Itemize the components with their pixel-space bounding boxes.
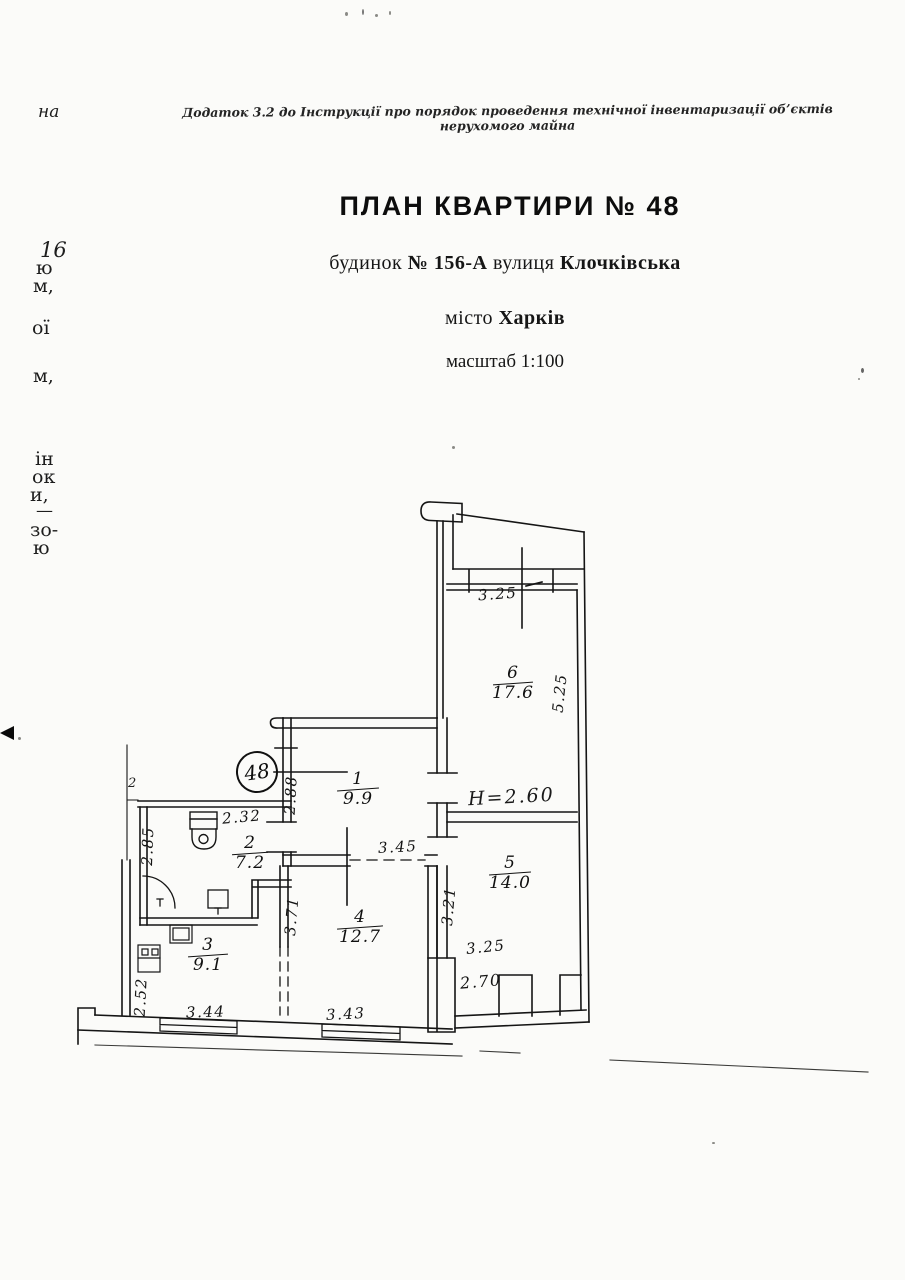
city-line: місто Харків: [145, 307, 865, 330]
margin-fragment: —: [36, 501, 53, 521]
room-number: 5: [504, 856, 516, 871]
scan-speck: [345, 12, 348, 16]
room1-top-wall: [270, 718, 437, 728]
room-number: 1: [352, 772, 364, 787]
address-line: будинок № 156-А вулиця Клочківська: [145, 252, 865, 275]
neighbour-outline: [127, 745, 138, 860]
street-label: вулиця: [493, 252, 554, 274]
room6-left-wall: [437, 521, 443, 718]
room-number: 2: [244, 836, 256, 851]
dim-room5-depth: 3.21: [438, 886, 459, 927]
room-area: 14.0: [489, 875, 531, 892]
dim-room3-width: 3.44: [186, 1002, 226, 1021]
scanned-document-page: { "document": { "annex_note": "Додаток 3…: [0, 0, 905, 1280]
room-label-1: 1 9.9: [336, 772, 380, 808]
dim-room5-lower-width: 2.70: [459, 970, 502, 993]
margin-fragment: м,: [33, 275, 54, 297]
sink-symbol: [208, 890, 228, 914]
door-jambs: [428, 773, 457, 837]
pen-mark: 2: [128, 776, 136, 791]
scale-line: масштаб 1:100: [145, 351, 865, 373]
balcony: [421, 502, 584, 569]
scan-speck: [18, 737, 21, 740]
room2-door-jambs: [267, 822, 296, 852]
city-label: місто: [445, 307, 493, 329]
page-title: ПЛАН КВАРТИРИ № 48: [190, 191, 830, 222]
dim-room2-depth: 2.85: [138, 826, 157, 866]
room5-wall-notches: [499, 975, 581, 1016]
dimension-line: [522, 548, 542, 628]
room-area: 9.1: [193, 957, 223, 974]
room-area: 17.6: [492, 685, 534, 702]
room-label-3: 3 9.1: [186, 938, 230, 974]
room5-bottom-wall: [455, 1010, 589, 1028]
scan-speck: [375, 14, 378, 17]
dim-balcony-width: 3.25: [477, 584, 518, 605]
dim-room1-width: 2.88: [281, 775, 301, 815]
annex-note: Додаток 3.2 до Інструкції про порядок пр…: [145, 101, 870, 135]
dim-room3-depth: 2.52: [131, 977, 151, 1017]
scan-speck: [389, 11, 391, 15]
building-number: № 156-А: [408, 252, 488, 274]
floor-plan-drawing: [65, 485, 875, 1085]
stray-scan-lines: [95, 1045, 868, 1072]
stove-symbol: [138, 945, 160, 972]
room-number: 4: [354, 910, 366, 925]
scan-speck: [362, 9, 364, 15]
scan-speck: [861, 368, 864, 373]
dim-room4-depth: 3.71: [281, 896, 302, 937]
ceiling-height-note: H=2.60: [467, 784, 555, 811]
outer-right-wall: [577, 532, 589, 1022]
scan-speck: [712, 1142, 715, 1144]
dim-room1-length: 3.45: [378, 837, 418, 857]
room-label-4: 4 12.7: [334, 910, 386, 946]
margin-fragment: на: [38, 102, 59, 122]
room-area: 9.9: [343, 791, 373, 808]
room-label-6: 6 17.6: [490, 666, 536, 702]
room3-room4-partition: [280, 866, 288, 1015]
dim-room4-width: 3.43: [326, 1004, 366, 1024]
room-label-2: 2 7.2: [230, 836, 270, 872]
city-name: Харків: [499, 307, 565, 329]
margin-fragment: м,: [33, 365, 54, 387]
room6-room5-divider: [447, 812, 577, 822]
street-name: Клочківська: [560, 252, 681, 274]
room3-walls: [122, 860, 130, 1015]
room-area: 12.7: [339, 929, 381, 946]
margin-fragment: ю: [33, 537, 50, 559]
room-number: 3: [202, 938, 214, 953]
scan-speck: [452, 446, 455, 449]
room-label-5: 5 14.0: [486, 856, 534, 892]
scan-blot: [0, 726, 14, 740]
margin-fragment: ої: [32, 317, 50, 339]
dim-room2-width: 2.32: [221, 806, 262, 827]
scan-speck: [858, 378, 860, 380]
room-area: 7.2: [235, 855, 265, 872]
toilet-symbol: [190, 812, 217, 849]
room-number: 6: [507, 666, 519, 681]
building-label: будинок: [329, 252, 402, 274]
